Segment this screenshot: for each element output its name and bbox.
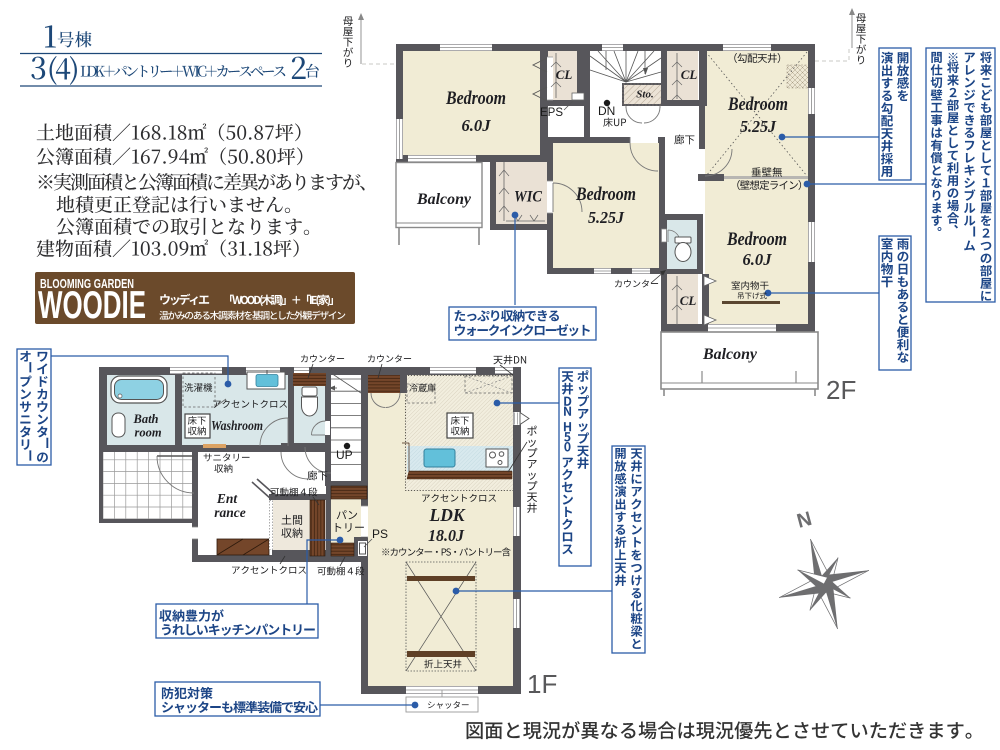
svg-text:CL: CL <box>681 67 698 82</box>
svg-text:Bedroom: Bedroom <box>445 88 506 109</box>
svg-text:6.0J: 6.0J <box>462 116 491 135</box>
svg-text:Bedroom: Bedroom <box>575 184 636 205</box>
svg-text:EPS: EPS <box>540 107 563 119</box>
svg-text:Washroom: Washroom <box>211 419 263 434</box>
svg-text:5.25J: 5.25J <box>588 208 624 227</box>
svg-text:rance: rance <box>214 505 246 520</box>
svg-text:Sto.: Sto. <box>636 89 653 101</box>
svg-text:WOODIE: WOODIE <box>38 284 146 327</box>
svg-text:Ent: Ent <box>216 491 239 506</box>
svg-text:Balcony: Balcony <box>702 346 758 363</box>
svg-text:N: N <box>795 508 815 533</box>
svg-text:UP: UP <box>336 448 353 462</box>
svg-text:WIC: WIC <box>514 189 543 206</box>
svg-text:CL: CL <box>556 67 573 82</box>
svg-text:6.0J: 6.0J <box>743 250 772 269</box>
svg-text:CL: CL <box>680 293 697 308</box>
svg-text:2F: 2F <box>826 375 856 405</box>
svg-text:Bath: Bath <box>132 412 158 426</box>
svg-text:Bedroom: Bedroom <box>727 94 788 115</box>
svg-text:1F: 1F <box>527 669 557 699</box>
svg-text:PS: PS <box>372 527 388 541</box>
svg-text:18.0J: 18.0J <box>428 526 465 545</box>
svg-text:DN: DN <box>598 104 615 118</box>
svg-text:Bedroom: Bedroom <box>726 229 787 250</box>
svg-text:Balcony: Balcony <box>416 191 472 208</box>
svg-text:5.25J: 5.25J <box>740 117 776 136</box>
svg-text:room: room <box>134 426 161 440</box>
svg-text:LDK: LDK <box>429 505 466 525</box>
